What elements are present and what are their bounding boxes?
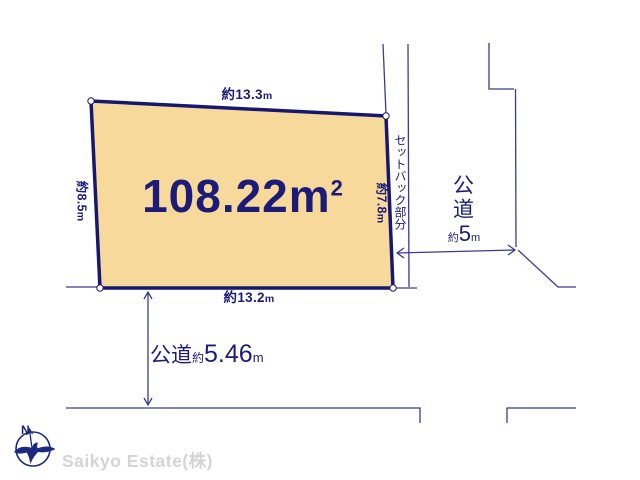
dimension-right: 約7.8m [375,183,388,224]
corner-dot [97,285,103,291]
area-value: 108.22 [142,170,289,222]
road-bottom-width-approx: 約 [192,351,204,365]
dimension-bottom-value: 約13.2 [224,290,265,305]
dimension-top-unit: m [263,90,273,102]
road-right-edge [516,89,517,247]
road-right-width-arrow [397,245,515,258]
road-corner-diagonal [518,250,576,287]
road-right-width-value: 5 [459,221,471,246]
area-unit: m [289,170,331,222]
company-watermark: Saikyo Estate(株) [62,453,213,471]
area-unit-exponent: 2 [331,176,344,201]
dimension-bottom-unit: m [265,293,275,305]
diagram-geometry [0,0,640,480]
corner-dot [383,113,389,119]
dimension-top: 約13.3m [222,88,273,102]
road-right-upper-edge [489,43,514,89]
road-bottom-far-edge-left [66,408,420,423]
dimension-left-value: 約8.5 [74,181,88,212]
corner-dot [88,98,94,104]
dimension-bottom: 約13.2m [224,291,275,305]
road-bottom-width-value: 5.46 [204,340,253,368]
corner-extension-line [383,44,386,114]
dimension-left-unit: m [74,212,86,222]
parcel-area-label: 108.22m2 [142,173,344,219]
setback-line [408,44,409,287]
dimension-right-unit: m [374,214,386,224]
road-bottom-far-edge-right [507,408,576,423]
road-bottom-width-unit: m [253,350,264,365]
corner-dot [390,285,396,291]
dimension-left: 約8.5m [75,181,88,222]
road-right-width-approx: 約 [448,232,459,244]
compass-north-label: N [21,424,30,436]
road-right-width: 約5m [448,223,480,245]
road-right-name: 公道 [452,174,473,222]
dimension-right-value: 約7.8 [374,183,388,214]
dimension-top-value: 約13.3 [222,87,263,102]
road-bottom-name: 公道 [150,344,192,367]
setback-label: セットバック部分 [394,134,406,230]
road-right-width-unit: m [471,232,480,244]
road-bottom-label: 公道約5.46m [150,341,264,371]
land-plot-diagram: N 約13.3m 約13.2m 約8.5m 約7.8m 108.22m2 セット… [0,0,640,480]
